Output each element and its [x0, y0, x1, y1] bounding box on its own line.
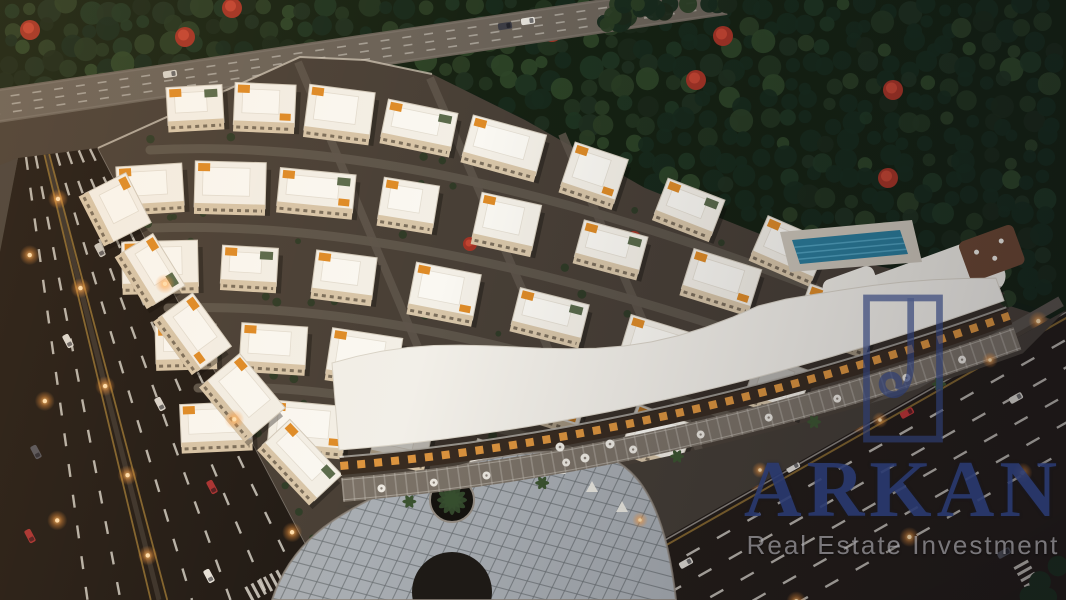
apartment-block [233, 82, 301, 134]
apartment-block [220, 245, 283, 293]
apartment-block [276, 168, 361, 221]
apartment-block [194, 161, 271, 216]
apartment-block [166, 84, 229, 132]
apartment-block [376, 177, 444, 235]
aerial-render-arkan-compound: ARKAN Real Estate Investment [0, 0, 1066, 600]
render-scene [0, 0, 1066, 600]
apartment-block [310, 250, 382, 307]
apartment-block [303, 84, 380, 146]
